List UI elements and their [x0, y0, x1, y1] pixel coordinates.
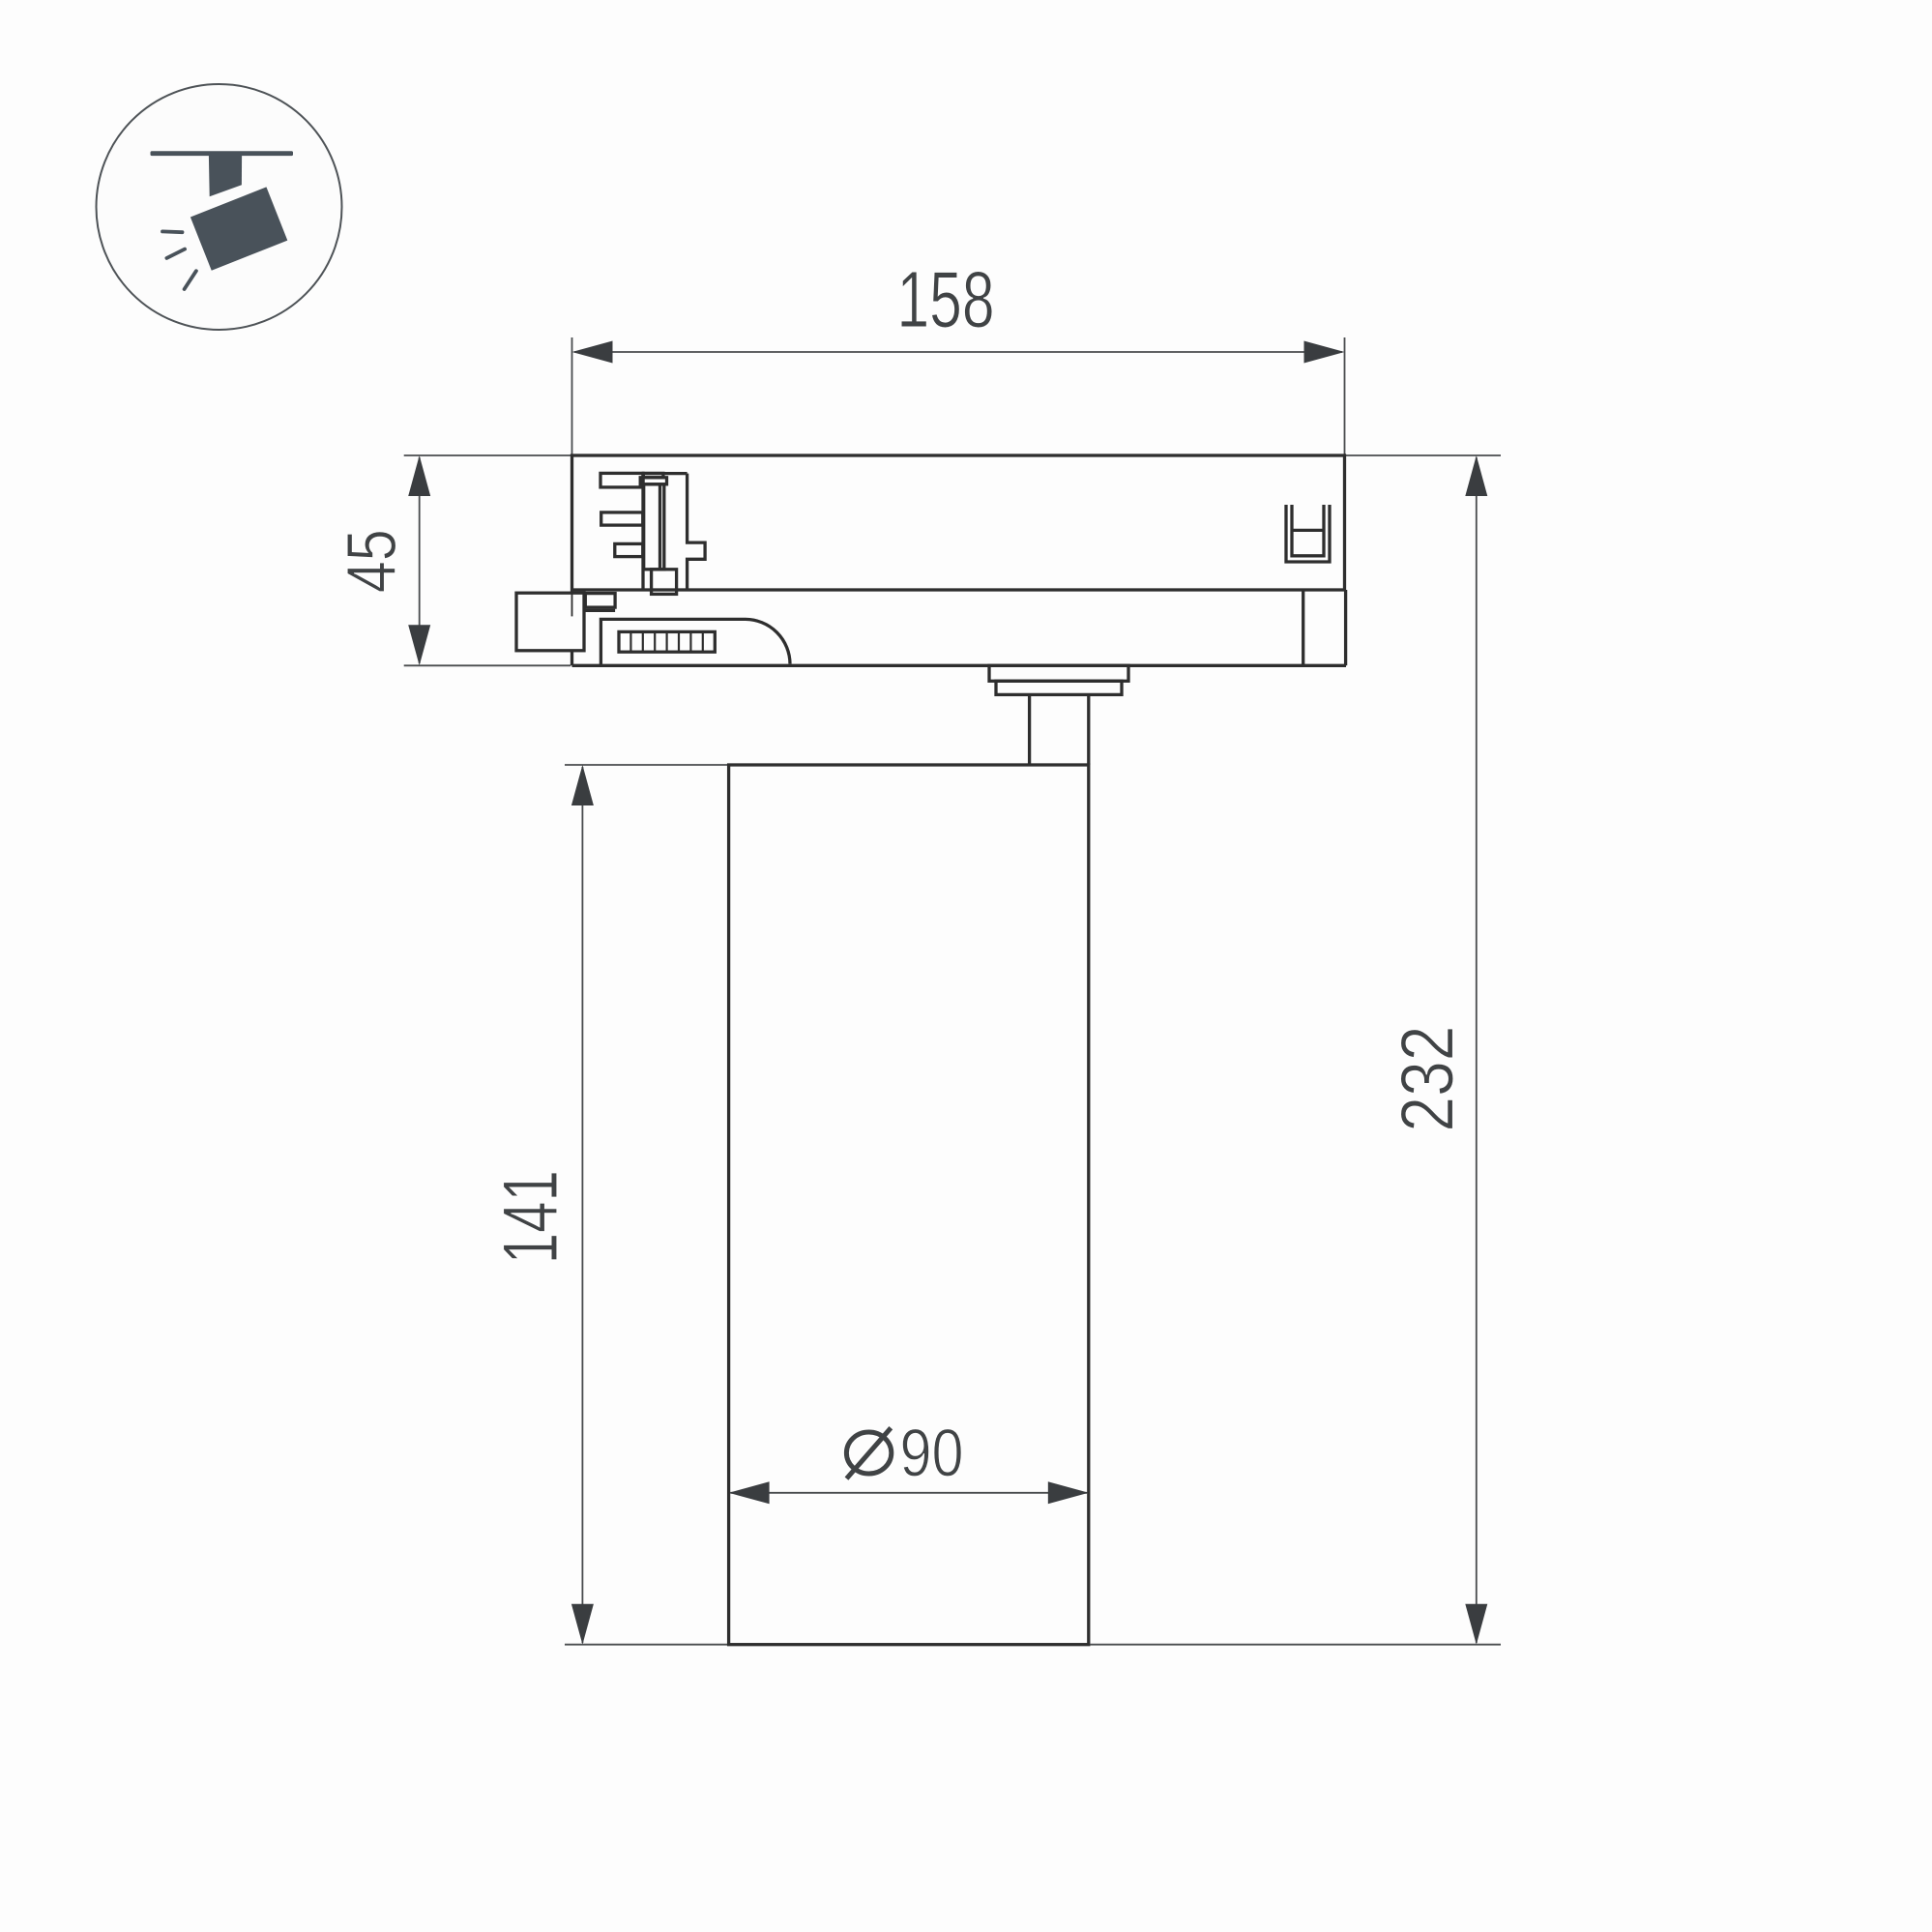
svg-text:45: 45: [334, 529, 411, 593]
svg-text:90: 90: [900, 1416, 964, 1491]
svg-text:141: 141: [487, 1170, 574, 1264]
svg-text:232: 232: [1387, 1026, 1470, 1132]
svg-text:158: 158: [897, 254, 995, 344]
